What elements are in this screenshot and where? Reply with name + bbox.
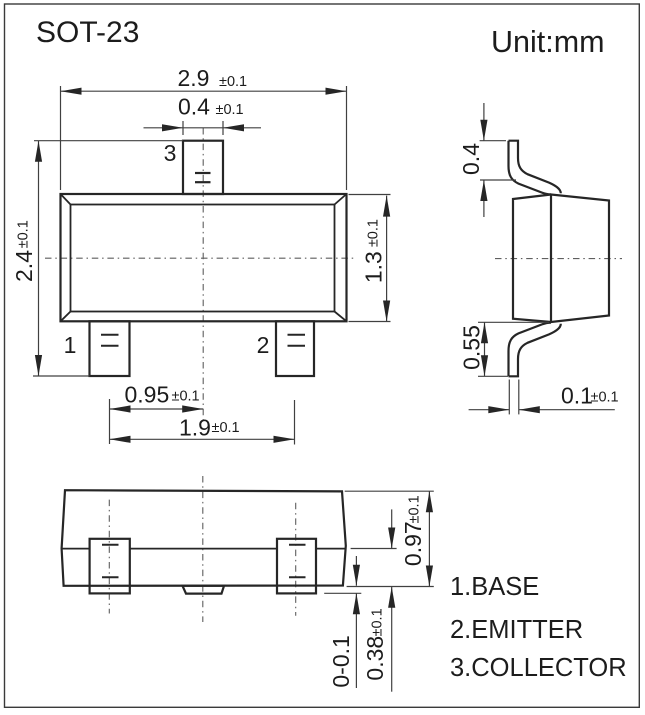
svg-text:SOT-23: SOT-23 <box>36 16 139 49</box>
svg-text:0.4: 0.4 <box>178 94 210 120</box>
svg-text:1.9: 1.9 <box>179 414 211 440</box>
svg-text:0.95: 0.95 <box>125 382 170 408</box>
svg-text:2.EMITTER: 2.EMITTER <box>450 616 583 644</box>
svg-text:2: 2 <box>257 332 270 358</box>
svg-text:±0.1: ±0.1 <box>370 608 386 636</box>
svg-text:0.4: 0.4 <box>458 143 484 175</box>
svg-text:±0.1: ±0.1 <box>216 102 244 118</box>
svg-text:2.9: 2.9 <box>178 65 210 91</box>
svg-text:1.3: 1.3 <box>361 251 387 283</box>
svg-text:0.55: 0.55 <box>459 325 485 370</box>
svg-text:±0.1: ±0.1 <box>16 220 32 248</box>
svg-text:±0.1: ±0.1 <box>406 495 422 523</box>
svg-text:0.38: 0.38 <box>362 636 388 681</box>
svg-text:±0.1: ±0.1 <box>366 219 382 247</box>
svg-text:0-0.1: 0-0.1 <box>328 635 354 687</box>
svg-text:±0.1: ±0.1 <box>212 420 240 436</box>
svg-text:1: 1 <box>64 332 77 358</box>
svg-text:3.COLLECTOR: 3.COLLECTOR <box>450 654 627 682</box>
svg-text:±0.1: ±0.1 <box>591 390 619 406</box>
svg-text:1.BASE: 1.BASE <box>450 573 539 601</box>
svg-text:2.4: 2.4 <box>11 250 37 282</box>
svg-text:0.1: 0.1 <box>561 382 593 408</box>
svg-text:3: 3 <box>164 140 177 166</box>
svg-text:0.97: 0.97 <box>400 521 426 566</box>
svg-text:±0.1: ±0.1 <box>172 389 200 405</box>
svg-text:Unit:mm: Unit:mm <box>491 25 605 59</box>
svg-text:±0.1: ±0.1 <box>219 74 247 90</box>
